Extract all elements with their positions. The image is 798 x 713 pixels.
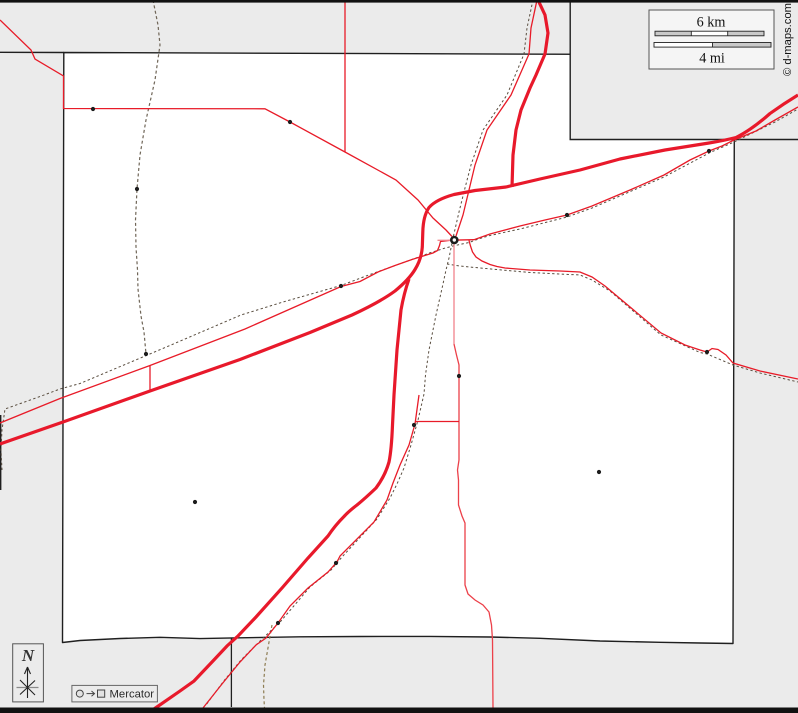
svg-text:6 km: 6 km — [697, 15, 726, 31]
svg-text:Mercator: Mercator — [110, 689, 155, 701]
svg-text:4 mi: 4 mi — [699, 51, 725, 67]
svg-text:N: N — [21, 646, 35, 665]
svg-text:© d-maps.com: © d-maps.com — [782, 3, 794, 76]
